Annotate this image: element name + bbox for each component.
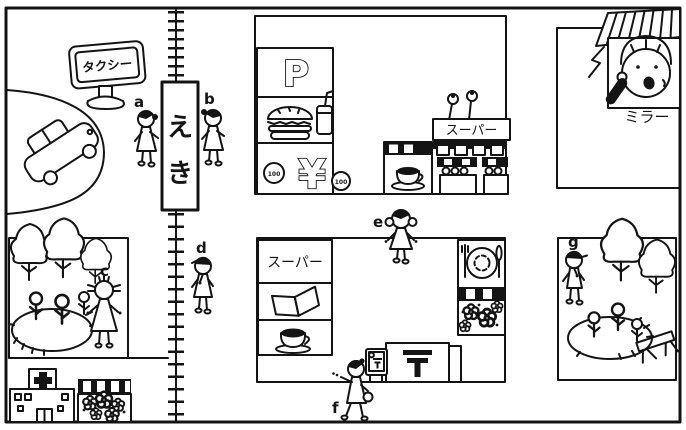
restaurant-flowershop-column (458, 240, 505, 335)
market-stall-right (482, 157, 508, 194)
coin-left-text: 100 (268, 171, 281, 178)
label-g: g (568, 233, 579, 251)
label-b: b (204, 90, 215, 108)
station-char-ki: き (167, 159, 193, 189)
phone-caller-block: ミラー (557, 9, 680, 188)
label-a: a (134, 93, 144, 111)
coin-right-text: 100 (335, 179, 348, 186)
label-d: d (196, 239, 207, 257)
supermarket-book-cafe-column: スーパー (258, 240, 332, 355)
bench-icon (636, 331, 678, 362)
yen-sign-text: ¥ (298, 152, 326, 198)
person-e: e (373, 209, 417, 263)
person-b: b (201, 90, 224, 166)
coffee-cup-icon (276, 329, 310, 354)
town-map-illustration: タクシー え き a b (0, 0, 686, 430)
taxi-stand: タクシー (7, 41, 146, 214)
top-middle-block: P ¥ 100 100 (255, 16, 510, 198)
caller-name-text: ミラー (624, 108, 669, 126)
ring-zigzag-icon (589, 47, 604, 77)
station-char-e: え (167, 113, 193, 143)
hospital-building (10, 369, 74, 422)
person-d: d (192, 239, 213, 314)
person-g: g (563, 233, 587, 305)
flower-shop-awning (458, 287, 505, 301)
supermarket-middle-sign-text: スーパー (267, 255, 323, 271)
label-f: f (332, 399, 339, 417)
supermarket-top: スーパー (433, 91, 510, 194)
station-sign: え き (162, 82, 198, 210)
tree-icon (44, 218, 84, 277)
tree-icon (639, 240, 675, 293)
taxi-signboard: タクシー (69, 41, 146, 89)
parking-fastfood-building: P ¥ 100 100 (257, 48, 350, 198)
market-stall-left (437, 157, 477, 194)
hamburger-icon (268, 107, 312, 139)
mailbox (366, 349, 387, 381)
cafe-shop (384, 142, 432, 194)
map-canvas: タクシー え き a b (0, 0, 686, 430)
post-office (386, 343, 461, 382)
person-a: a (134, 93, 158, 167)
flower-shop-bottom (78, 379, 131, 422)
parking-sign-text: P (283, 54, 309, 95)
tree-icon (11, 224, 49, 280)
sign-base (87, 97, 124, 110)
tree-icon (601, 219, 643, 281)
flower-bed (9, 292, 96, 355)
supermarket-top-sign-text: スーパー (446, 124, 498, 139)
label-e: e (373, 213, 383, 231)
